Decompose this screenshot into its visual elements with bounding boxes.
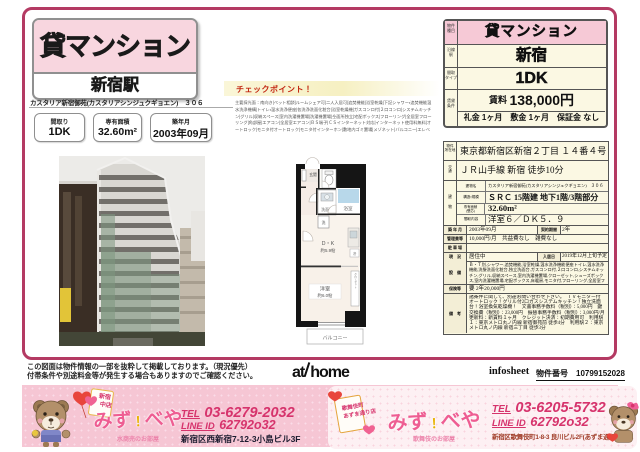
svg-text:洗: 洗 <box>322 220 326 225</box>
svg-text:浴室: 浴室 <box>344 205 353 212</box>
svg-text:クローゼット: クローゼット <box>354 272 357 289</box>
svg-text:約6.0帖: 約6.0帖 <box>318 292 333 299</box>
svg-text:D・K: D・K <box>322 241 335 247</box>
svg-text:洋室: 洋室 <box>320 285 330 293</box>
svg-text:冷: 冷 <box>353 251 357 256</box>
svg-text:玄関: 玄関 <box>309 172 317 177</box>
svg-text:約5.9帖: 約5.9帖 <box>321 247 336 254</box>
svg-text:バルコニー: バルコニー <box>323 336 348 342</box>
